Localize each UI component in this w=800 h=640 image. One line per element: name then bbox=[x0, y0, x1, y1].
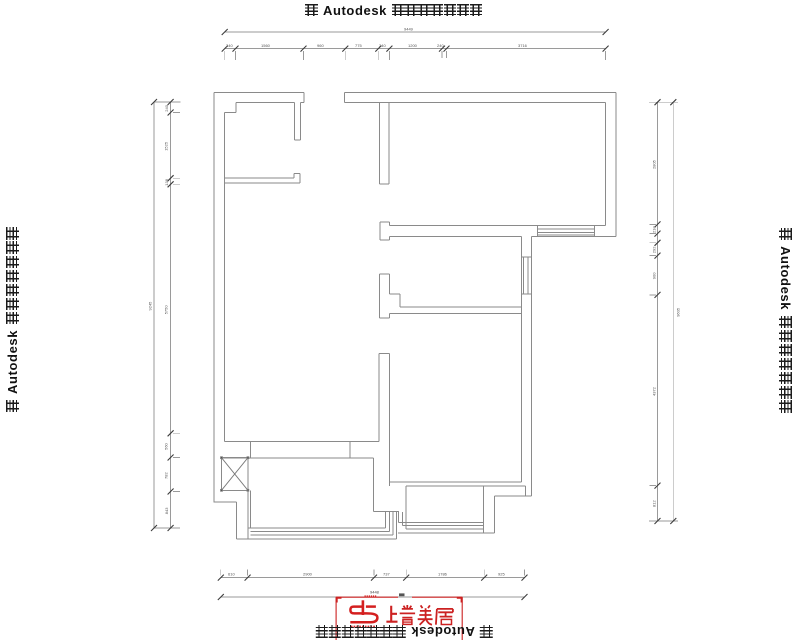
svg-text:782: 782 bbox=[164, 472, 169, 479]
svg-text:292: 292 bbox=[651, 246, 656, 253]
svg-text:9448: 9448 bbox=[370, 590, 380, 595]
svg-text:2805: 2805 bbox=[652, 159, 657, 169]
svg-text:1560: 1560 bbox=[261, 43, 271, 48]
svg-text:960: 960 bbox=[317, 43, 324, 48]
svg-text:240: 240 bbox=[379, 43, 386, 48]
svg-text:3716: 3716 bbox=[518, 43, 528, 48]
svg-text:1525: 1525 bbox=[164, 141, 169, 151]
svg-text:1786: 1786 bbox=[438, 572, 448, 577]
svg-text:2900: 2900 bbox=[303, 572, 313, 577]
svg-text:610: 610 bbox=[228, 572, 235, 577]
svg-text:9449: 9449 bbox=[404, 27, 414, 32]
svg-text:925: 925 bbox=[498, 572, 505, 577]
svg-text:240: 240 bbox=[437, 43, 444, 48]
svg-text:240: 240 bbox=[226, 43, 233, 48]
svg-text:560: 560 bbox=[164, 442, 169, 449]
svg-text:843: 843 bbox=[164, 507, 169, 514]
svg-text:812: 812 bbox=[652, 500, 657, 507]
svg-text:138: 138 bbox=[164, 178, 169, 185]
svg-text:240: 240 bbox=[164, 104, 169, 111]
svg-text:5750: 5750 bbox=[164, 305, 169, 315]
svg-text:210: 210 bbox=[652, 226, 657, 233]
svg-text:900: 900 bbox=[651, 272, 656, 279]
svg-text:775: 775 bbox=[355, 43, 362, 48]
svg-text:737: 737 bbox=[383, 572, 390, 577]
svg-text:1200: 1200 bbox=[408, 43, 418, 48]
svg-text:9245: 9245 bbox=[148, 301, 153, 311]
svg-text:4372: 4372 bbox=[652, 386, 657, 396]
svg-text:9605: 9605 bbox=[675, 307, 680, 317]
